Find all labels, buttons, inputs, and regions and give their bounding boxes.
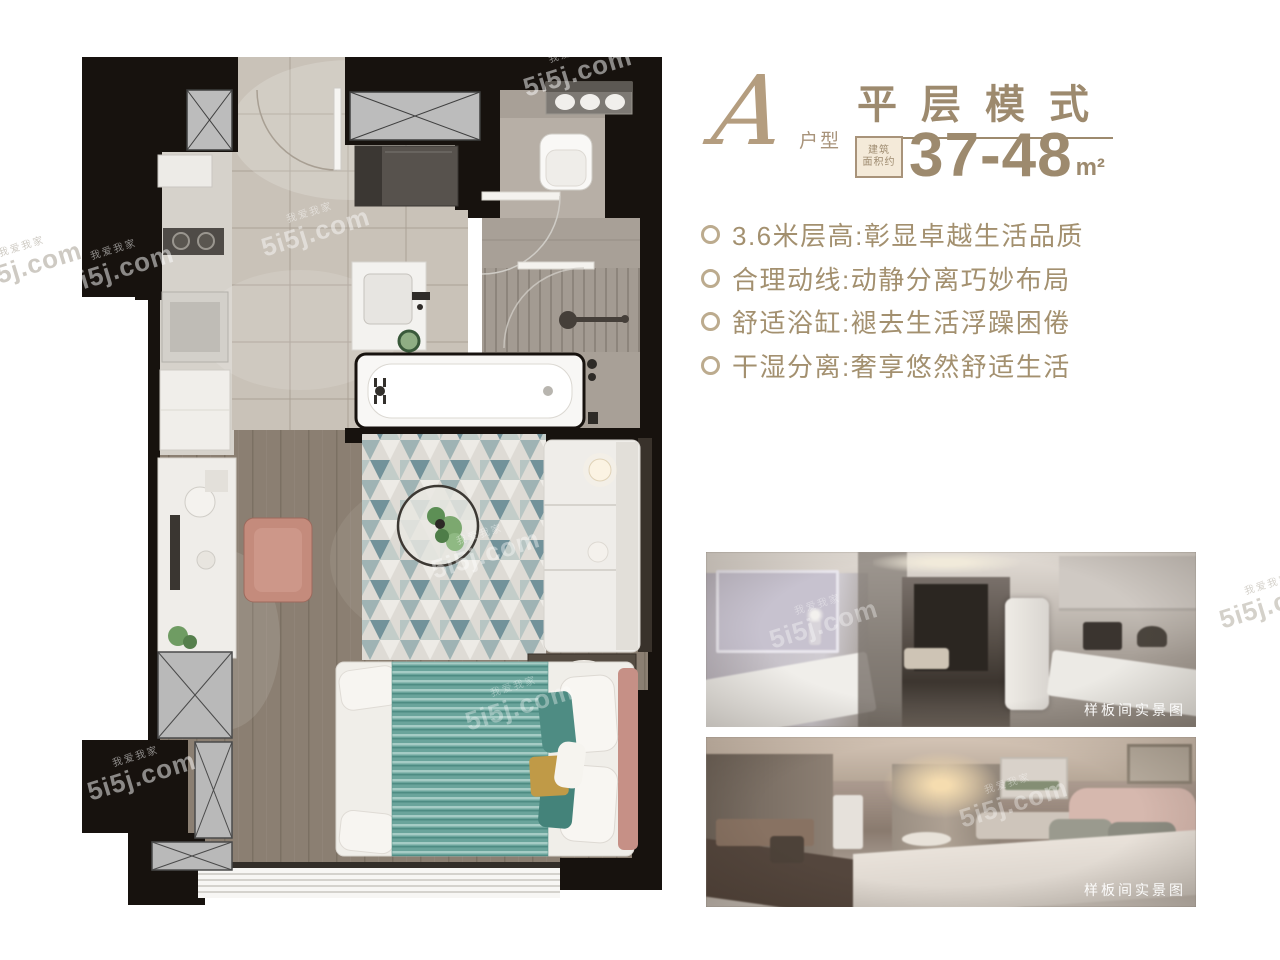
feature-list: 3.6米层高:彰显卓越生活品质 合理动线:动静分离巧妙布局 舒适浴缸:褪去生活浮… <box>701 213 1084 387</box>
photo-caption: 样板间实景图 <box>1084 880 1186 900</box>
unit-type-label: 户型 <box>799 126 841 153</box>
accent-chair <box>244 518 312 602</box>
shaft-box-top-middle <box>350 92 480 140</box>
shaft-box-top-left <box>187 90 232 150</box>
watermark: 我爱我家5i5j.com <box>0 226 85 295</box>
area-unit: m² <box>1076 154 1105 182</box>
kitchen-cabinet <box>158 155 212 187</box>
photo-caption: 样板间实景图 <box>1084 700 1186 720</box>
balcony-window <box>198 868 560 898</box>
kitchen-counter <box>160 370 230 450</box>
bullet-ring-icon <box>701 356 720 375</box>
toilet <box>540 134 592 190</box>
feature-text: 舒适浴缸:褪去生活浮躁困倦 <box>732 303 1071 340</box>
coffee-table <box>398 486 478 566</box>
bullet-ring-icon <box>701 312 720 331</box>
feature-text: 干湿分离:奢享悠然舒适生活 <box>732 347 1071 384</box>
feature-text: 合理动线:动静分离巧妙布局 <box>732 260 1071 297</box>
bed <box>336 662 638 856</box>
watermark: 我爱我家5i5j.com <box>1213 564 1280 633</box>
flyer-page: 我爱我家5i5j.com 我爱我家5i5j.com 我爱我家5i5j.com 我… <box>0 0 1280 960</box>
feature-item: 合理动线:动静分离巧妙布局 <box>701 257 1084 301</box>
area-badge-line2: 面积约 <box>863 157 896 169</box>
area-value: 37-48 <box>909 128 1073 184</box>
headboard <box>618 668 638 850</box>
area-badge-line1: 建筑 <box>868 145 890 157</box>
decor-sphere <box>588 542 608 562</box>
showroom-photo-2: 我爱我家5i5j.com 样板间实景图 <box>706 737 1196 907</box>
cooktop-2burner <box>163 228 224 255</box>
shower-floor <box>482 268 645 352</box>
vanity-basin <box>352 262 430 351</box>
teal-blanket <box>392 662 548 856</box>
floorplan-drawing <box>80 56 665 905</box>
feature-item: 干湿分离:奢享悠然舒适生活 <box>701 344 1084 388</box>
unit-type-letter: A <box>686 56 811 166</box>
feature-text: 3.6米层高:彰显卓越生活品质 <box>732 216 1084 253</box>
hall-cabinet <box>355 146 458 206</box>
soap-dish <box>399 331 419 351</box>
desk <box>158 458 236 658</box>
bullet-ring-icon <box>701 225 720 244</box>
bullet-ring-icon <box>701 269 720 288</box>
showroom-photo-1: 我爱我家5i5j.com 样板间实景图 <box>706 552 1196 727</box>
cooktop-3burner <box>546 82 632 114</box>
feature-item: 舒适浴缸:褪去生活浮躁困倦 <box>701 300 1084 344</box>
area-row: 建筑 面积约 37-48 m² <box>855 128 1105 184</box>
bathtub <box>356 354 598 428</box>
kitchen-appliance <box>162 292 228 362</box>
feature-item: 3.6米层高:彰显卓越生活品质 <box>701 213 1084 257</box>
area-badge: 建筑 面积约 <box>855 136 903 178</box>
sofa <box>544 440 640 652</box>
